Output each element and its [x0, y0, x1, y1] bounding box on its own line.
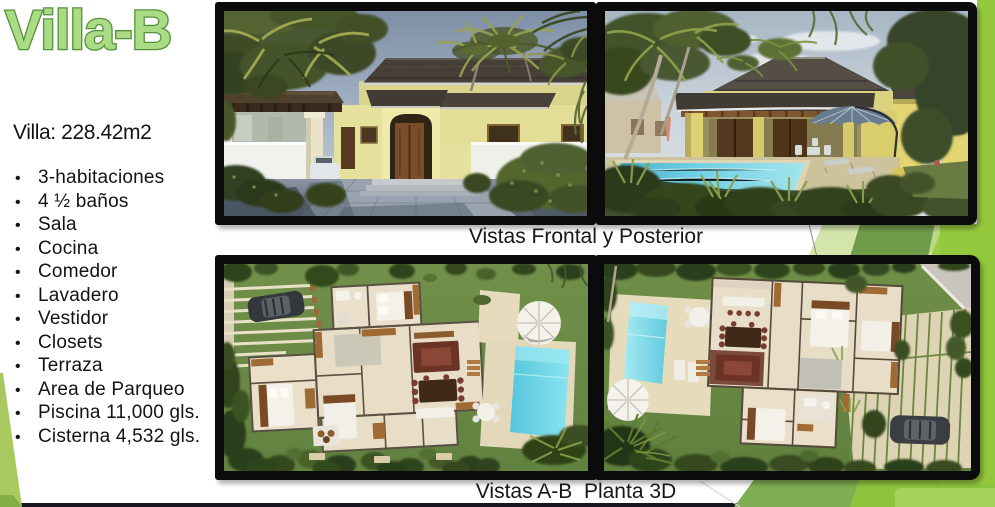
svg-text:Villa-B: Villa-B: [5, 0, 171, 61]
